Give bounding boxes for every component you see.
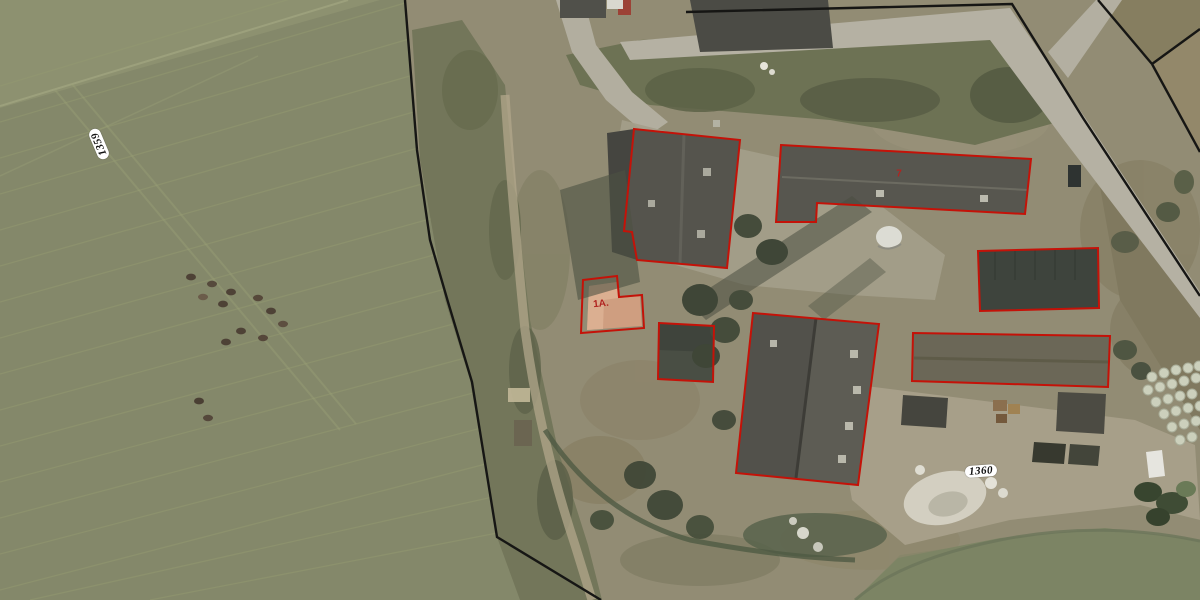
- neighbor-boundary-b: [1152, 29, 1200, 64]
- parcel-boundary-west: [405, 0, 601, 600]
- building-outline-stable-long-ne: [776, 145, 1031, 222]
- building-outline-stable-long-se: [912, 333, 1110, 387]
- aerial-map-canvas[interactable]: 1359 1360 1A. 7: [0, 0, 1200, 600]
- parcel-boundary-north-east: [686, 4, 1200, 296]
- house-number-label-1a: 1A.: [593, 298, 610, 311]
- parcel-number-label-1360: 1360: [965, 464, 998, 478]
- building-outline-shed-center: [658, 323, 714, 382]
- building-outline-shed-east: [978, 248, 1099, 311]
- neighbor-boundary-a: [1098, 0, 1152, 64]
- house-number-label-7: 7: [896, 169, 902, 180]
- building-outline-barn-north: [624, 129, 740, 268]
- neighbor-boundary-c: [1152, 64, 1200, 152]
- building-outline-barn-south: [736, 313, 879, 485]
- building-outline-house-1a: [581, 276, 644, 333]
